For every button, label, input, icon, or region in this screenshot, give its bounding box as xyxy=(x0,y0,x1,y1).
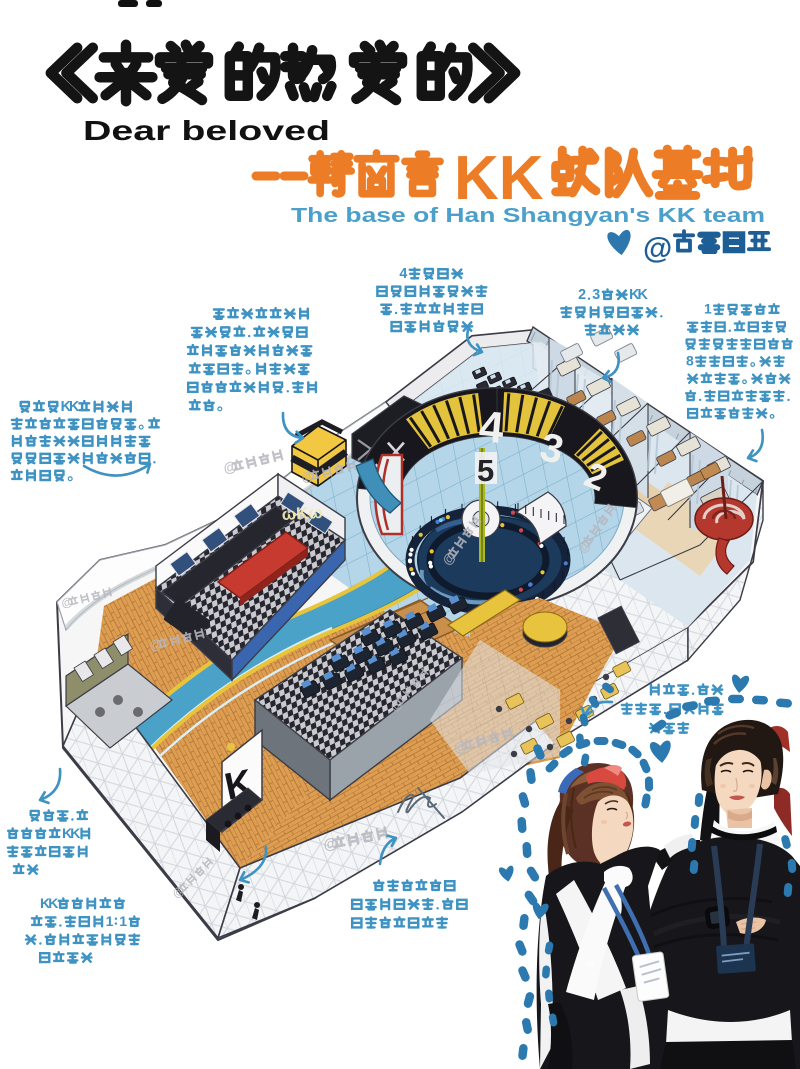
svg-text:8: 8 xyxy=(686,353,694,369)
svg-text:K: K xyxy=(69,399,80,415)
svg-text:@: @ xyxy=(643,232,672,265)
svg-text:4: 4 xyxy=(399,266,407,282)
svg-text:1: 1 xyxy=(106,913,114,929)
svg-text:Dear beloved: Dear beloved xyxy=(83,115,330,146)
svg-text:3: 3 xyxy=(592,287,600,303)
svg-text:The base of Han Shangyan's KK: The base of Han Shangyan's KK team xyxy=(291,204,765,227)
svg-text:4: 4 xyxy=(477,402,506,453)
svg-text:ωKω: ωKω xyxy=(281,503,323,524)
svg-text:5: 5 xyxy=(477,453,494,488)
svg-text:K: K xyxy=(638,287,649,303)
svg-text:1: 1 xyxy=(704,301,712,317)
svg-text:K: K xyxy=(48,895,59,911)
svg-text:KK: KK xyxy=(454,144,544,213)
svg-text:K: K xyxy=(70,825,81,841)
svg-text:2: 2 xyxy=(578,287,586,303)
svg-text:1: 1 xyxy=(119,913,127,929)
